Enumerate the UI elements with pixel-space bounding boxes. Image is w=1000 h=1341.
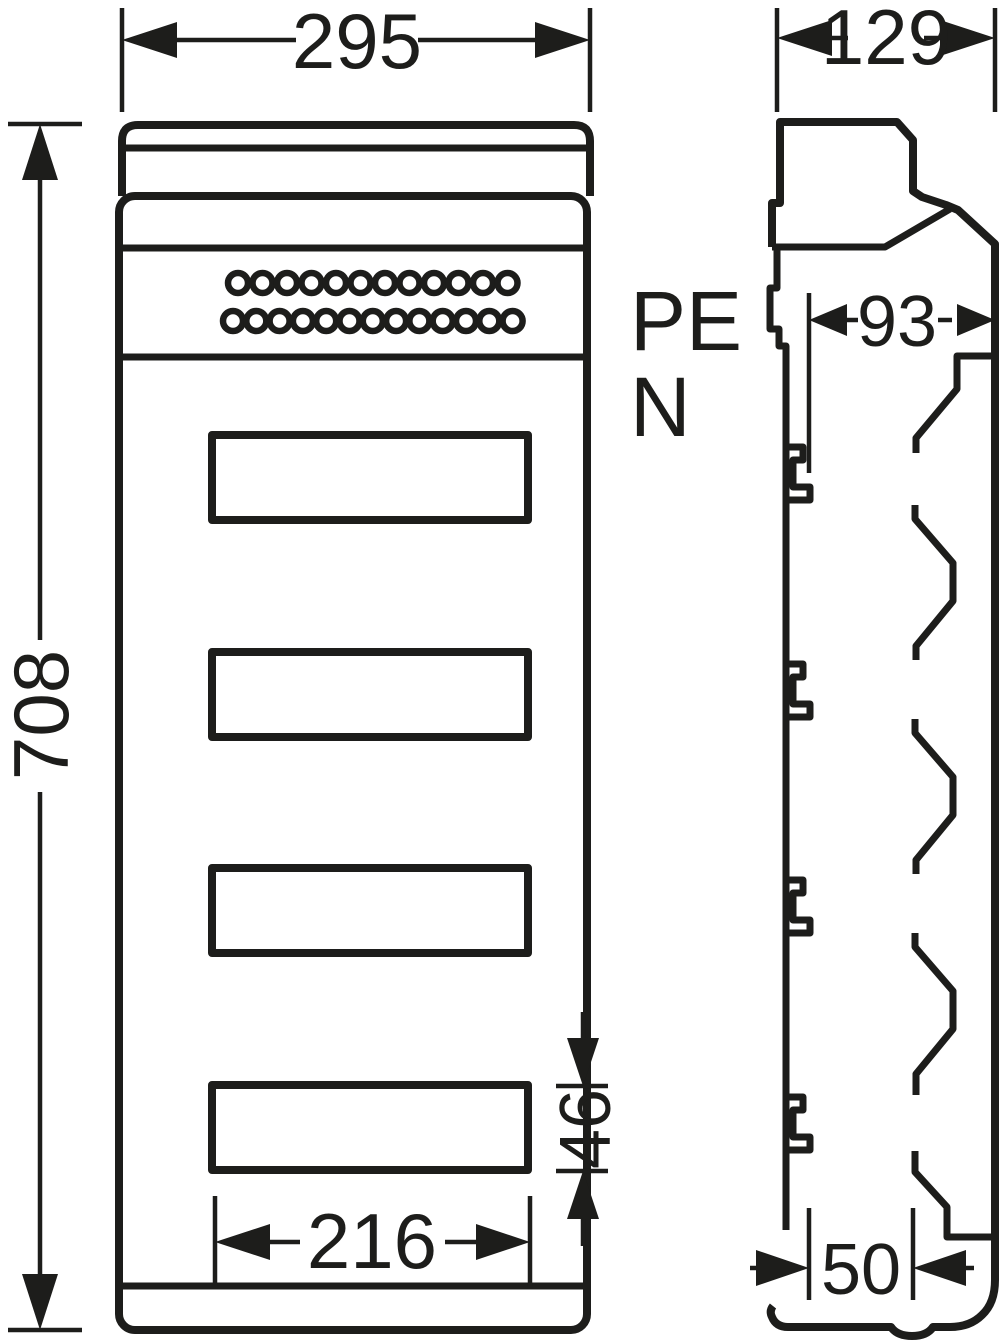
terminal-hole [316,311,336,331]
side-rail-clip-3 [915,719,953,874]
side-claw-notch-4 [786,1097,810,1150]
side-lid-joint-line [772,209,950,247]
terminal-hole [223,311,243,331]
terminal-hole [375,273,395,293]
terminal-hole [503,311,523,331]
side-rail-clip-top [916,356,995,453]
dimension-value-side-depth: 129 [821,0,951,81]
n-label: N [630,360,691,454]
arrowhead-right [957,304,995,336]
terminal-hole [424,273,444,293]
terminal-hole [340,311,360,331]
dimension-value-window-width: 216 [307,1197,437,1285]
side-claw-notch-3 [786,880,810,933]
terminal-hole [449,273,469,293]
arrowhead-right [476,1224,530,1260]
arrowhead-top [22,124,58,180]
pe-label: PE [630,274,742,368]
terminal-hole [386,311,406,331]
window-cutout-4 [212,1085,528,1170]
dimension-value-front-height: 708 [0,650,85,780]
terminal-hole [498,273,518,293]
side-rail-clip-2 [915,505,953,660]
dimension-front-height: 708 [0,124,85,1330]
side-rail-clip-4 [915,933,953,1095]
terminal-hole [363,311,383,331]
terminal-hole [479,311,499,331]
window-cutout-3 [212,868,528,953]
arrowhead-down [567,1038,599,1086]
arrowhead-left [809,304,847,336]
dimension-value-front-width: 295 [292,0,422,85]
arrowhead-left [122,22,177,58]
dimension-value-device-depth: 93 [857,282,937,362]
window-cutout-2 [212,652,528,737]
dimension-value-window-height: 46 [546,1089,626,1169]
front-view [119,125,590,1330]
arrowhead-up [567,1171,599,1219]
dimension-window-width: 216 [215,1196,530,1286]
terminal-hole [351,273,371,293]
terminal-holes-row-n [223,311,523,331]
terminal-hole [400,273,420,293]
terminal-hole [326,273,346,293]
arrowhead-bottom [22,1274,58,1330]
terminal-hole [277,273,297,293]
front-body [119,196,587,1330]
terminal-hole [253,273,273,293]
side-claw-notch-1 [786,447,810,500]
side-left-wall [770,247,786,1230]
dimension-value-base-depth: 50 [821,1230,901,1310]
dimension-side-depth: 129 [777,0,995,112]
terminal-labels: PE N [630,274,742,454]
terminal-hole [293,311,313,331]
front-lid [122,125,590,196]
dimension-device-depth: 93 [809,282,995,473]
terminal-hole [302,273,322,293]
dimension-front-width: 295 [122,0,590,112]
dimension-drawing: PE N 295 129 708 93 216 [0,0,1000,1341]
drawing-canvas: PE N 295 129 708 93 216 [0,0,1000,1341]
dimension-window-height: 46 [546,1012,626,1246]
terminal-hole [246,311,266,331]
arrowhead-left [215,1224,270,1260]
terminal-hole [456,311,476,331]
terminal-hole [433,311,453,331]
arrowhead-left-pointing [913,1250,966,1286]
terminal-hole [409,311,429,331]
terminal-hole [270,311,290,331]
terminal-holes-row-pe [228,273,518,293]
arrowhead-right-pointing [756,1250,809,1286]
side-rail-clip-bottom [915,1151,995,1237]
arrowhead-right [535,22,590,58]
window-cutout-1 [212,435,528,520]
terminal-hole [473,273,493,293]
terminal-hole [228,273,248,293]
side-claw-notch-2 [786,664,810,717]
